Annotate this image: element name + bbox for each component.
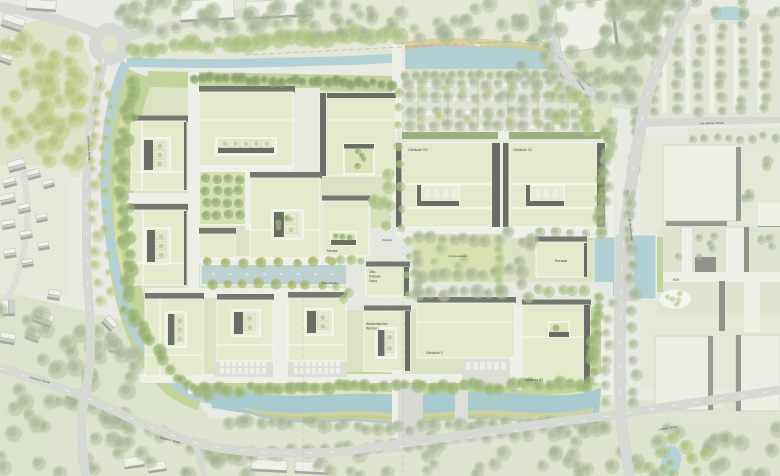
svg-text:Wasserbecken: Wasserbecken (322, 281, 340, 285)
svg-text:Gebäude G1: Gebäude G1 (524, 378, 544, 382)
svg-text:Vorplatz: Vorplatz (382, 238, 393, 242)
svg-text:Haus: Haus (369, 279, 377, 283)
svg-text:Hörsaal: Hörsaal (555, 259, 568, 263)
svg-text:Mensa: Mensa (327, 249, 337, 253)
svg-text:Gebäude G2: Gebäude G2 (513, 148, 533, 152)
svg-text:Lise-Meitner-Straße: Lise-Meitner-Straße (700, 121, 725, 125)
svg-text:Wohnen: Wohnen (366, 327, 379, 331)
svg-text:Studentisches: Studentisches (366, 322, 388, 326)
svg-text:PZH: PZH (673, 278, 680, 282)
svg-text:Gebäude G3: Gebäude G3 (408, 148, 428, 152)
svg-text:Gebäude F: Gebäude F (426, 351, 443, 355)
svg-text:Otto-: Otto- (369, 270, 377, 274)
svg-text:Krässer-: Krässer- (369, 275, 382, 279)
svg-text:Campuswiese: Campuswiese (448, 254, 467, 258)
